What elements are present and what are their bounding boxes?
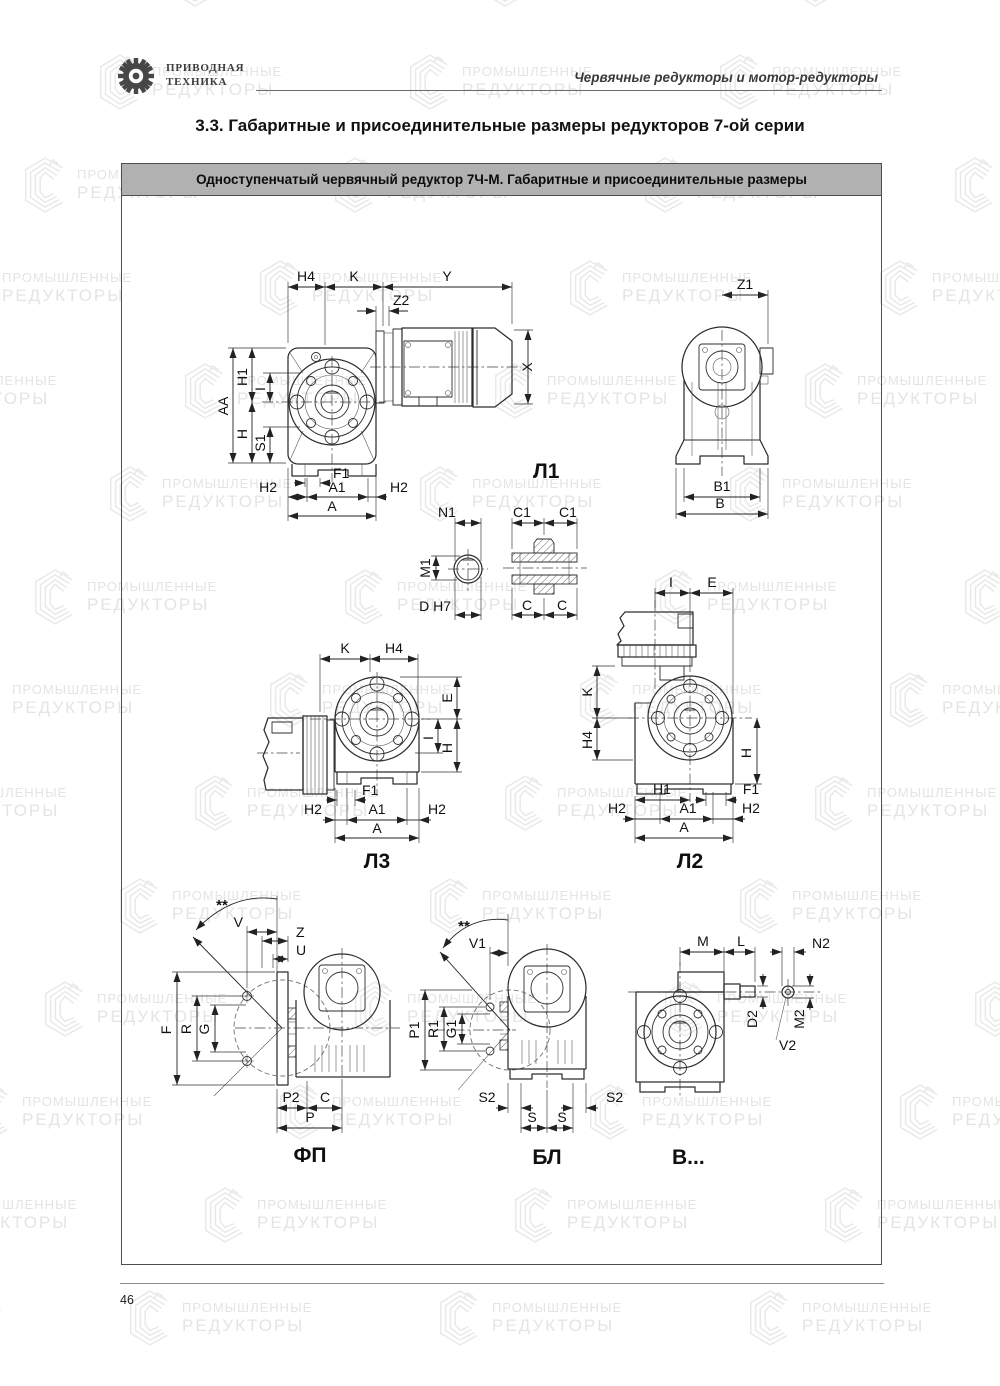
gear-icon xyxy=(114,54,158,98)
watermark: ПРОМЫШЛЕННЫЕРЕДУКТОРЫ xyxy=(0,774,67,832)
watermark: ПРОМЫШЛЕННЫЕРЕДУКТОРЫ xyxy=(0,362,57,420)
watermark-hex-icon xyxy=(405,53,455,111)
watermark-hex-icon xyxy=(480,0,530,8)
section-title: 3.3. Габаритные и присоединительные разм… xyxy=(0,116,1000,136)
watermark: ПРОМЫШЛЕННЫЕРЕДУКТОРЫ xyxy=(435,1289,622,1347)
watermark-hex-icon xyxy=(20,156,70,214)
watermark-hex-icon xyxy=(950,156,1000,214)
watermark: ПРОМЫШЛЕННЫЕРЕДУКТОРЫ xyxy=(790,0,977,8)
logo-line1: ПРИВОДНАЯ xyxy=(166,62,244,76)
watermark: ПРОМЫШЛЕННЫЕРЕДУКТОРЫ xyxy=(745,1289,932,1347)
watermark: ПРОМЫШЛЕННЫЕРЕДУКТОРЫ xyxy=(0,1186,77,1244)
watermark: ПРОМЫШЛЕННЫЕРЕДУКТОРЫ xyxy=(0,259,132,317)
watermark-hex-icon xyxy=(30,568,80,626)
logo-text: ПРИВОДНАЯ ТЕХНИКА xyxy=(166,62,244,90)
watermark-hex-icon xyxy=(970,980,1000,1038)
catalog-page: ПРОМЫШЛЕННЫЕРЕДУКТОРЫПРОМЫШЛЕННЫЕРЕДУКТО… xyxy=(0,0,1000,1386)
header-rule xyxy=(256,90,882,91)
watermark: ПРОМЫШЛЕННЫЕРЕДУКТОРЫ xyxy=(970,980,1000,1038)
watermark-hex-icon xyxy=(745,1289,795,1347)
watermark: ПРОМЫШЛЕННЫЕРЕДУКТОРЫ xyxy=(895,1083,1000,1141)
running-head: Червячные редукторы и мотор-редукторы xyxy=(574,70,878,85)
watermark: ПРОМЫШЛЕННЫЕРЕДУКТОРЫ xyxy=(950,156,1000,214)
company-logo: ПРИВОДНАЯ ТЕХНИКА xyxy=(114,54,244,98)
watermark-hex-icon xyxy=(40,980,90,1038)
watermark: ПРОМЫШЛЕННЫЕРЕДУКТОРЫ xyxy=(0,0,47,8)
watermark-hex-icon xyxy=(170,0,220,8)
watermark-hex-icon xyxy=(895,1083,945,1141)
watermark: ПРОМЫШЛЕННЫЕРЕДУКТОРЫ xyxy=(885,671,1000,729)
watermark: ПРОМЫШЛЕННЫЕРЕДУКТОРЫ xyxy=(0,1289,2,1347)
figure-panel: Одноступенчатый червячный редуктор 7Ч-М.… xyxy=(121,163,882,1265)
watermark: ПРОМЫШЛЕННЫЕРЕДУКТОРЫ xyxy=(960,568,1000,626)
watermark: ПРОМЫШЛЕННЫЕРЕДУКТОРЫ xyxy=(405,53,592,111)
watermark: ПРОМЫШЛЕННЫЕРЕДУКТОРЫ xyxy=(875,259,1000,317)
watermark: ПРОМЫШЛЕННЫЕРЕДУКТОРЫ xyxy=(480,0,667,8)
logo-line2: ТЕХНИКА xyxy=(166,76,244,90)
watermark: ПРОМЫШЛЕННЫЕРЕДУКТОРЫ xyxy=(125,1289,312,1347)
watermark: ПРОМЫШЛЕННЫЕРЕДУКТОРЫ xyxy=(170,0,357,8)
watermark-hex-icon xyxy=(885,671,935,729)
watermark-hex-icon xyxy=(960,568,1000,626)
footer-rule xyxy=(120,1283,884,1284)
watermark-hex-icon xyxy=(435,1289,485,1347)
page-number: 46 xyxy=(120,1293,134,1307)
watermark-hex-icon xyxy=(0,671,5,729)
watermark-hex-icon xyxy=(0,1083,15,1141)
figure-panel-title: Одноступенчатый червячный редуктор 7Ч-М.… xyxy=(122,164,881,196)
watermark-hex-icon xyxy=(790,0,840,8)
watermark-hex-icon xyxy=(875,259,925,317)
